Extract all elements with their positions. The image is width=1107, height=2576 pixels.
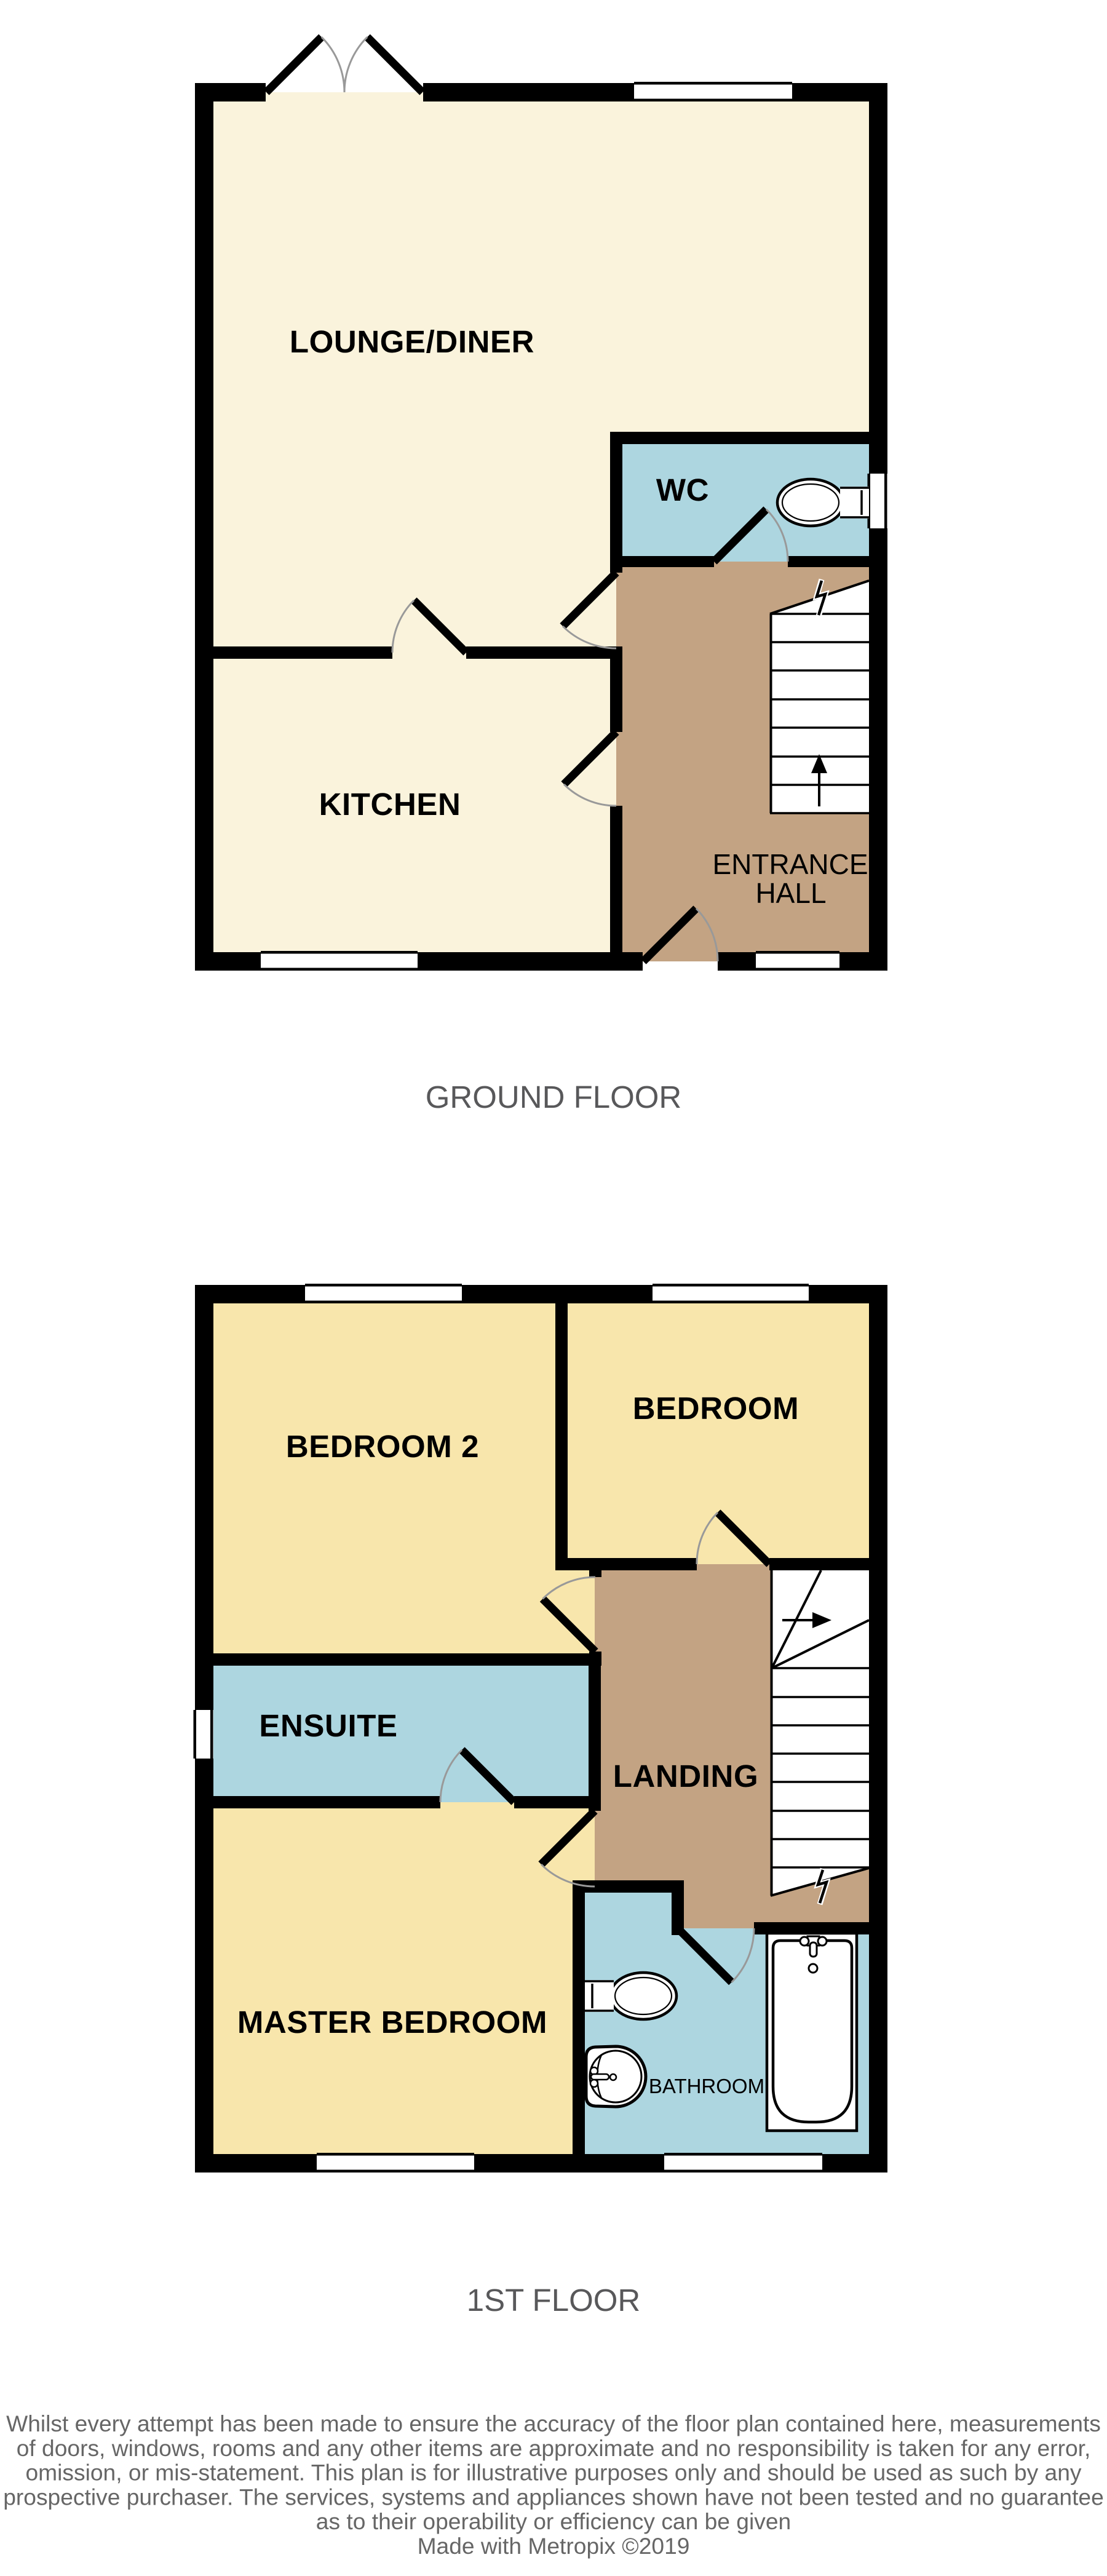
svg-text:of doors, windows, rooms and a: of doors, windows, rooms and any other i… xyxy=(17,2435,1091,2461)
svg-text:MASTER BEDROOM: MASTER BEDROOM xyxy=(237,2005,547,2040)
svg-text:BEDROOM 2: BEDROOM 2 xyxy=(286,1429,479,1464)
svg-text:ENSUITE: ENSUITE xyxy=(259,1708,397,1743)
svg-text:1ST FLOOR: 1ST FLOOR xyxy=(467,2283,640,2318)
svg-text:BATHROOM: BATHROOM xyxy=(649,2075,764,2097)
svg-text:ENTRANCE: ENTRANCE xyxy=(712,848,868,880)
svg-text:omission, or mis-statement. Th: omission, or mis-statement. This plan is… xyxy=(26,2460,1082,2486)
svg-text:LOUNGE/DINER: LOUNGE/DINER xyxy=(290,324,534,359)
svg-text:HALL: HALL xyxy=(755,877,826,909)
svg-text:BEDROOM: BEDROOM xyxy=(633,1391,799,1426)
svg-text:Whilst every attempt has been: Whilst every attempt has been made to en… xyxy=(6,2411,1101,2436)
svg-text:LANDING: LANDING xyxy=(613,1759,759,1794)
svg-text:GROUND FLOOR: GROUND FLOOR xyxy=(426,1079,682,1115)
svg-text:KITCHEN: KITCHEN xyxy=(319,787,461,822)
svg-text:prospective purchaser. The ser: prospective purchaser. The services, sys… xyxy=(3,2484,1104,2510)
svg-text:Made with Metropix ©2019: Made with Metropix ©2019 xyxy=(418,2533,690,2559)
svg-text:WC: WC xyxy=(656,472,709,507)
svg-text:as to their operability or eff: as to their operability or efficiency ca… xyxy=(316,2508,791,2534)
